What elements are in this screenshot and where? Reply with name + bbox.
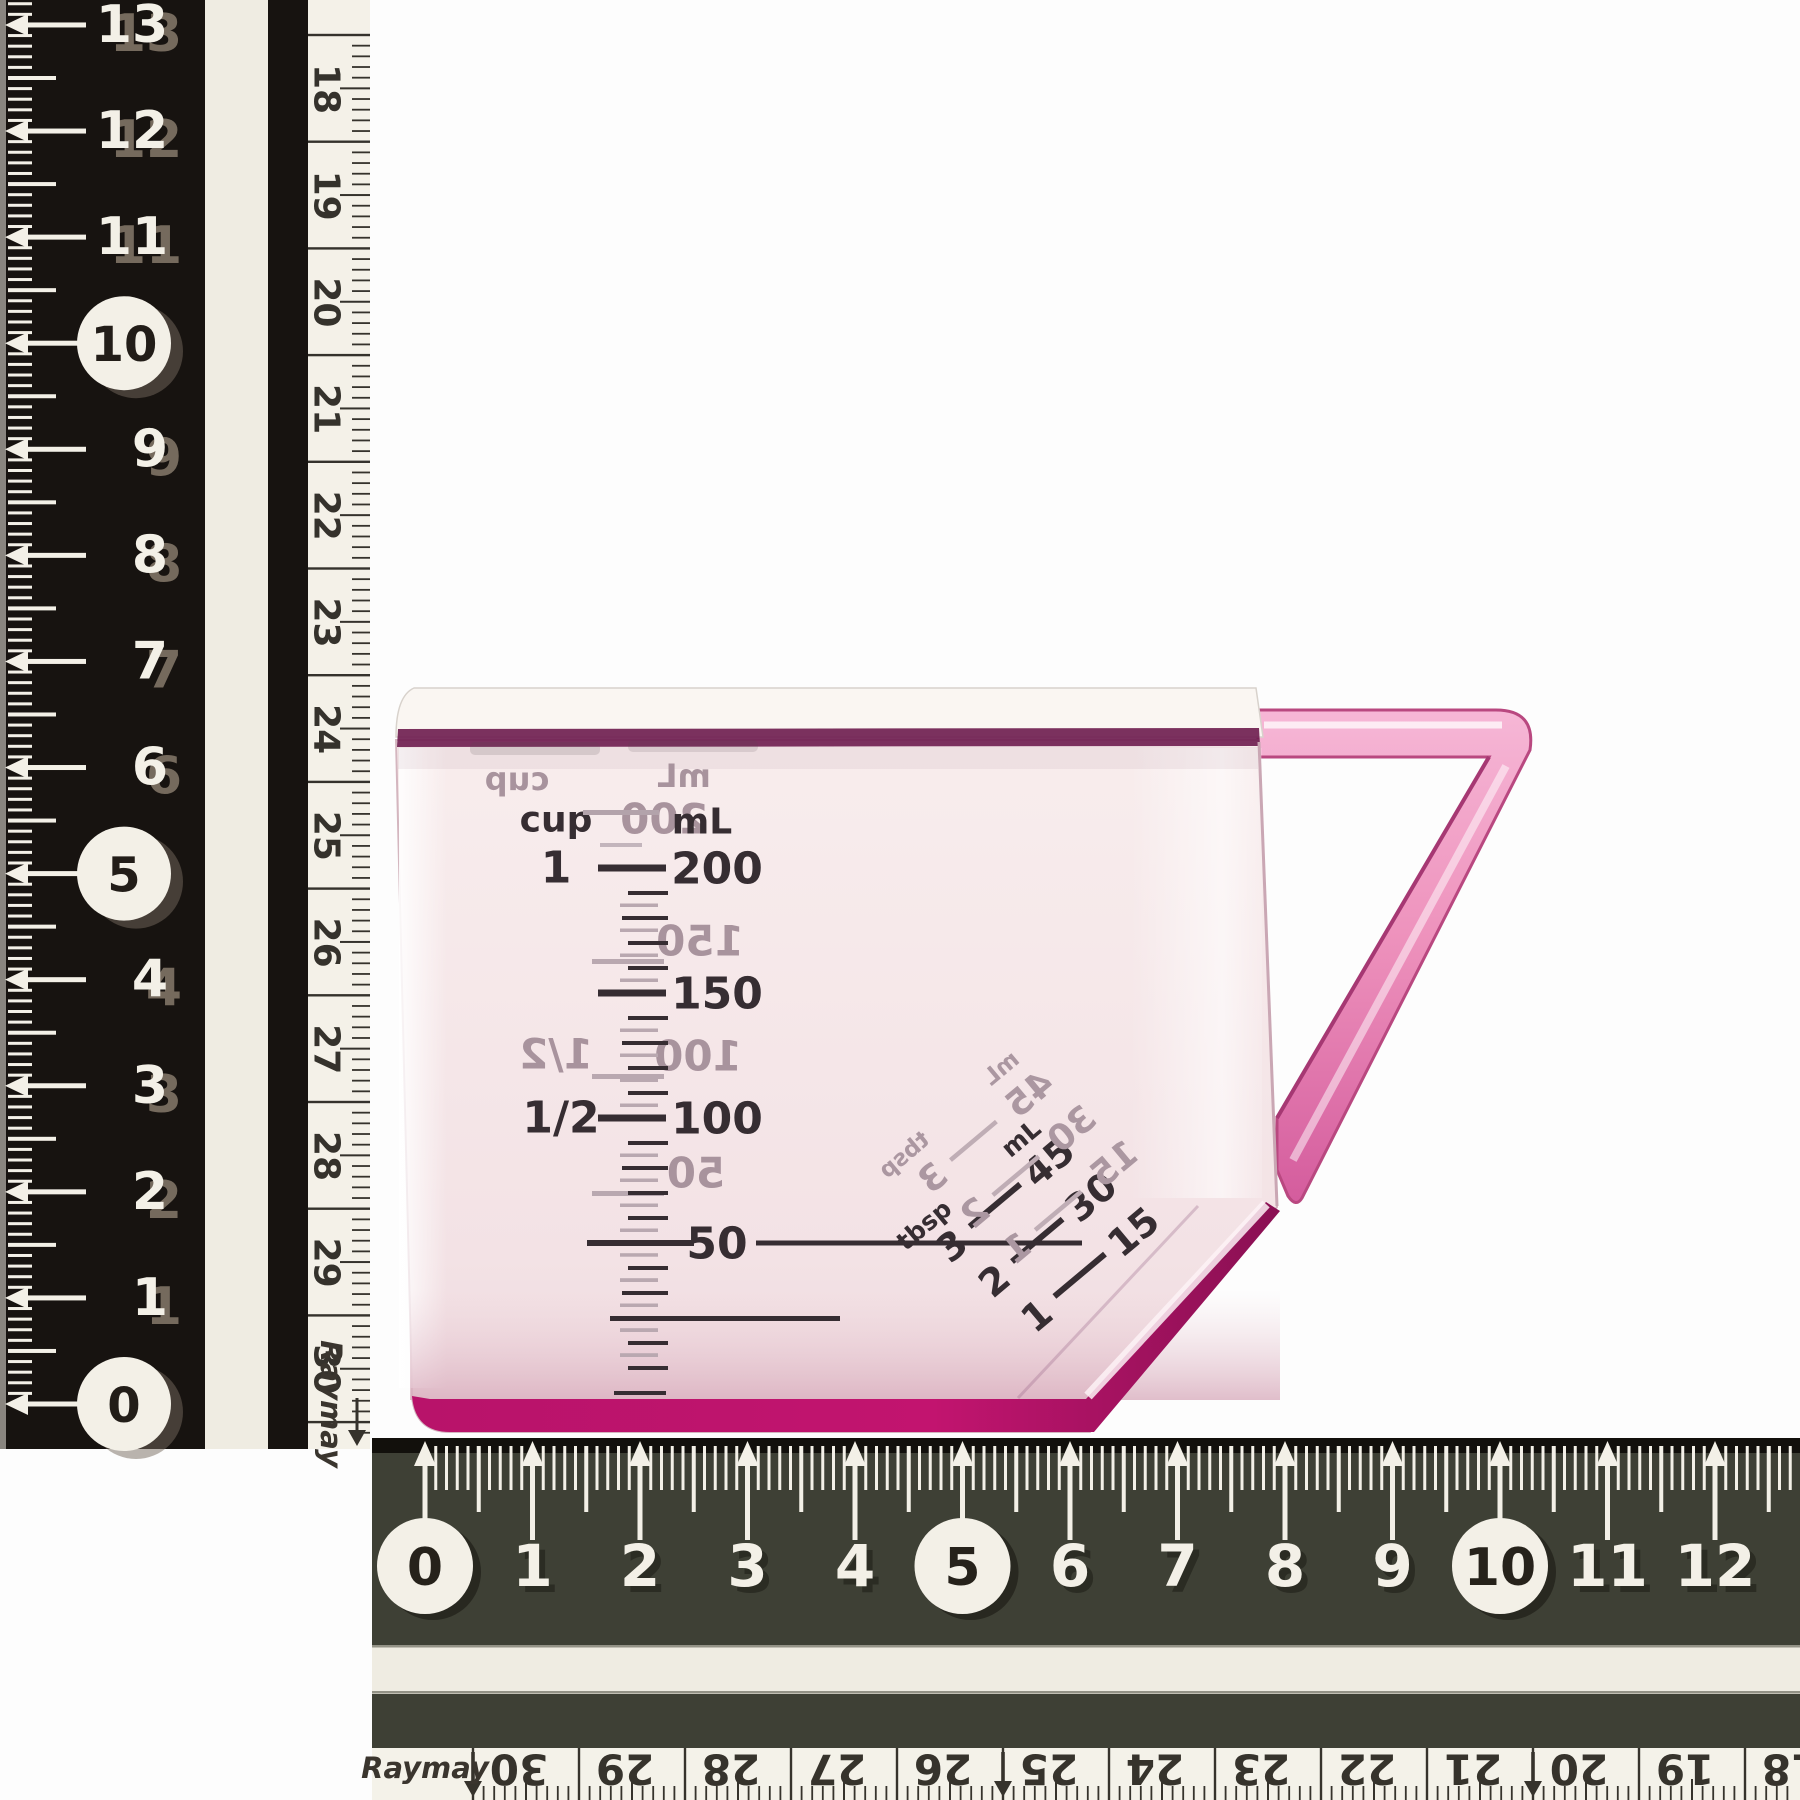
vertical-ruler-reverse-number: 19 xyxy=(306,171,347,221)
vertical-ruler-number: 10 xyxy=(91,317,158,373)
measuring-cup: cup mL 200 cup mL 12001501501/21001001/2… xyxy=(396,688,1531,1432)
horizontal-ruler-reverse-number: 26 xyxy=(914,1745,972,1794)
vertical-ruler-reverse-number: 28 xyxy=(306,1131,347,1181)
horizontal-ruler-reverse-number: 24 xyxy=(1126,1745,1184,1794)
cup-scale-cup-value: 1/2 xyxy=(522,1093,599,1144)
horizontal-ruler-reverse-number: 18 xyxy=(1762,1745,1800,1794)
horizontal-ruler-brand: Raymay xyxy=(361,1751,490,1785)
vertical-ruler-reverse-number: 22 xyxy=(306,491,347,541)
vertical-ruler: 01122334456677889910111112121313 1819202… xyxy=(0,0,370,1469)
cup-scale-ml-value: 150 xyxy=(671,969,763,1020)
vertical-ruler-reverse-number: 25 xyxy=(306,811,347,861)
ghost-cup-header: cup xyxy=(485,760,550,798)
ghost-ml-header: mL xyxy=(657,757,711,795)
vertical-ruler-number: 12 xyxy=(96,101,168,161)
vertical-ruler-reverse-number: 21 xyxy=(306,384,347,434)
horizontal-ruler-reverse-number: 23 xyxy=(1232,1745,1290,1794)
product-photo: cup mL 200 cup mL 12001501501/21001001/2… xyxy=(0,0,1800,1800)
cup-scale-ml-ghost: 50 xyxy=(667,1149,725,1198)
horizontal-ruler-number: 2 xyxy=(620,1532,660,1600)
vertical-ruler-stripe xyxy=(205,0,268,1449)
vertical-ruler-number: 13 xyxy=(96,0,168,55)
horizontal-ruler: 0112233445667788991011111212 30292827262… xyxy=(361,1438,1800,1800)
vertical-ruler-number: 7 xyxy=(132,631,168,691)
vertical-ruler-number: 6 xyxy=(132,738,168,798)
horizontal-ruler-reverse-number: 29 xyxy=(596,1745,654,1794)
horizontal-ruler-reverse-number: 28 xyxy=(702,1745,760,1794)
horizontal-ruler-stripe xyxy=(372,1645,1800,1694)
cup-header: cup xyxy=(520,800,593,841)
horizontal-ruler-reverse-number: 20 xyxy=(1550,1745,1608,1794)
vertical-ruler-number: 1 xyxy=(132,1268,168,1328)
horizontal-ruler-number: 1 xyxy=(512,1532,552,1600)
vertical-ruler-number: 0 xyxy=(107,1378,140,1434)
vertical-ruler-number: 3 xyxy=(132,1056,168,1116)
vertical-ruler-number: 8 xyxy=(132,525,168,585)
horizontal-ruler-number: 12 xyxy=(1675,1532,1756,1600)
horizontal-ruler-number: 11 xyxy=(1567,1532,1648,1600)
vertical-ruler-number: 5 xyxy=(107,848,140,904)
vertical-ruler-number: 11 xyxy=(96,207,168,267)
horizontal-ruler-number: 8 xyxy=(1265,1532,1305,1600)
vertical-ruler-reverse-number: 23 xyxy=(306,597,347,647)
horizontal-ruler-reverse-number: 19 xyxy=(1656,1745,1714,1794)
horizontal-ruler-number: 4 xyxy=(835,1532,875,1600)
cup-scale-cup-value: 1 xyxy=(541,843,572,894)
vertical-ruler-reverse-number: 24 xyxy=(306,704,347,754)
cup-scale-cup-ghost: 1/2 xyxy=(519,1030,593,1079)
vertical-ruler-reverse-number: 27 xyxy=(306,1024,347,1074)
cup-handle xyxy=(1258,710,1531,1203)
horizontal-ruler-reverse-number: 22 xyxy=(1338,1745,1396,1794)
vertical-ruler-brand: Raymay xyxy=(314,1340,348,1469)
horizontal-ruler-number: 0 xyxy=(407,1538,443,1598)
ml-header: mL xyxy=(672,802,732,843)
vertical-ruler-reverse-number: 29 xyxy=(306,1238,347,1288)
horizontal-ruler-number: 5 xyxy=(944,1538,980,1598)
cup-scale-ml-ghost: 100 xyxy=(654,1032,742,1081)
horizontal-ruler-reverse-number: 27 xyxy=(808,1745,866,1794)
horizontal-ruler-reverse-number: 30 xyxy=(490,1745,548,1794)
horizontal-ruler-number: 3 xyxy=(727,1532,767,1600)
horizontal-ruler-reverse-number: 25 xyxy=(1020,1745,1078,1794)
vertical-ruler-number: 9 xyxy=(132,419,168,479)
horizontal-ruler-reverse-number: 21 xyxy=(1444,1745,1502,1794)
cup-scale-ml-value: 100 xyxy=(671,1094,763,1145)
vertical-ruler-number: 2 xyxy=(132,1162,168,1222)
horizontal-ruler-number: 9 xyxy=(1372,1532,1412,1600)
horizontal-ruler-number: 7 xyxy=(1157,1532,1197,1600)
horizontal-ruler-number: 10 xyxy=(1464,1538,1536,1598)
cup-scale-ml-ghost: 150 xyxy=(656,917,744,966)
cup-scale-ml-value: 200 xyxy=(671,844,763,895)
vertical-ruler-number: 4 xyxy=(132,950,168,1010)
vertical-ruler-reverse-number: 20 xyxy=(306,277,347,327)
horizontal-ruler-number: 6 xyxy=(1050,1532,1090,1600)
vertical-ruler-reverse-number: 26 xyxy=(306,918,347,968)
vertical-ruler-reverse-number: 18 xyxy=(306,64,347,114)
cup-scale-ml-value: 50 xyxy=(686,1219,747,1270)
